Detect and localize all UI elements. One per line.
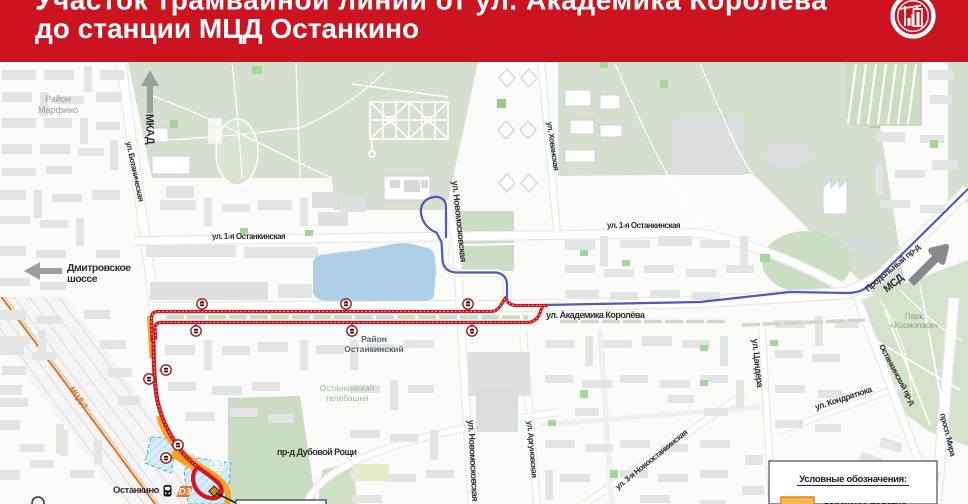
svg-text:Останкинский: Останкинский <box>344 344 403 354</box>
svg-text:Останкинская: Останкинская <box>320 383 375 393</box>
svg-text:телебашня: телебашня <box>325 393 369 403</box>
svg-text:Марфино: Марфино <box>38 105 78 115</box>
svg-text:ул. 1-я Останкинская: ул. 1-я Останкинская <box>212 232 286 241</box>
svg-text:Район: Район <box>45 94 71 104</box>
svg-text:пр-д Дубовой Рощи: пр-д Дубовой Рощи <box>277 447 357 457</box>
svg-text:Условные обозначения:: Условные обозначения: <box>799 474 907 485</box>
svg-text:Останкино: Останкино <box>113 485 160 496</box>
svg-text:Парк: Парк <box>905 312 924 321</box>
svg-text:до станции МЦД Останкино: до станции МЦД Останкино <box>35 13 419 44</box>
svg-text:шоссе: шоссе <box>67 273 98 285</box>
svg-text:D3: D3 <box>179 487 192 498</box>
svg-text:МКАД: МКАД <box>143 114 156 145</box>
svg-text:ул. Академика Королёва: ул. Академика Королёва <box>546 310 646 320</box>
svg-text:ул. 1-я Останкинская: ул. 1-я Останкинская <box>607 221 681 230</box>
svg-text:дорожное полотно: дорожное полотно <box>823 500 907 504</box>
svg-text:Район: Район <box>361 334 387 344</box>
svg-text:«Космопарк»: «Космопарк» <box>890 321 939 330</box>
